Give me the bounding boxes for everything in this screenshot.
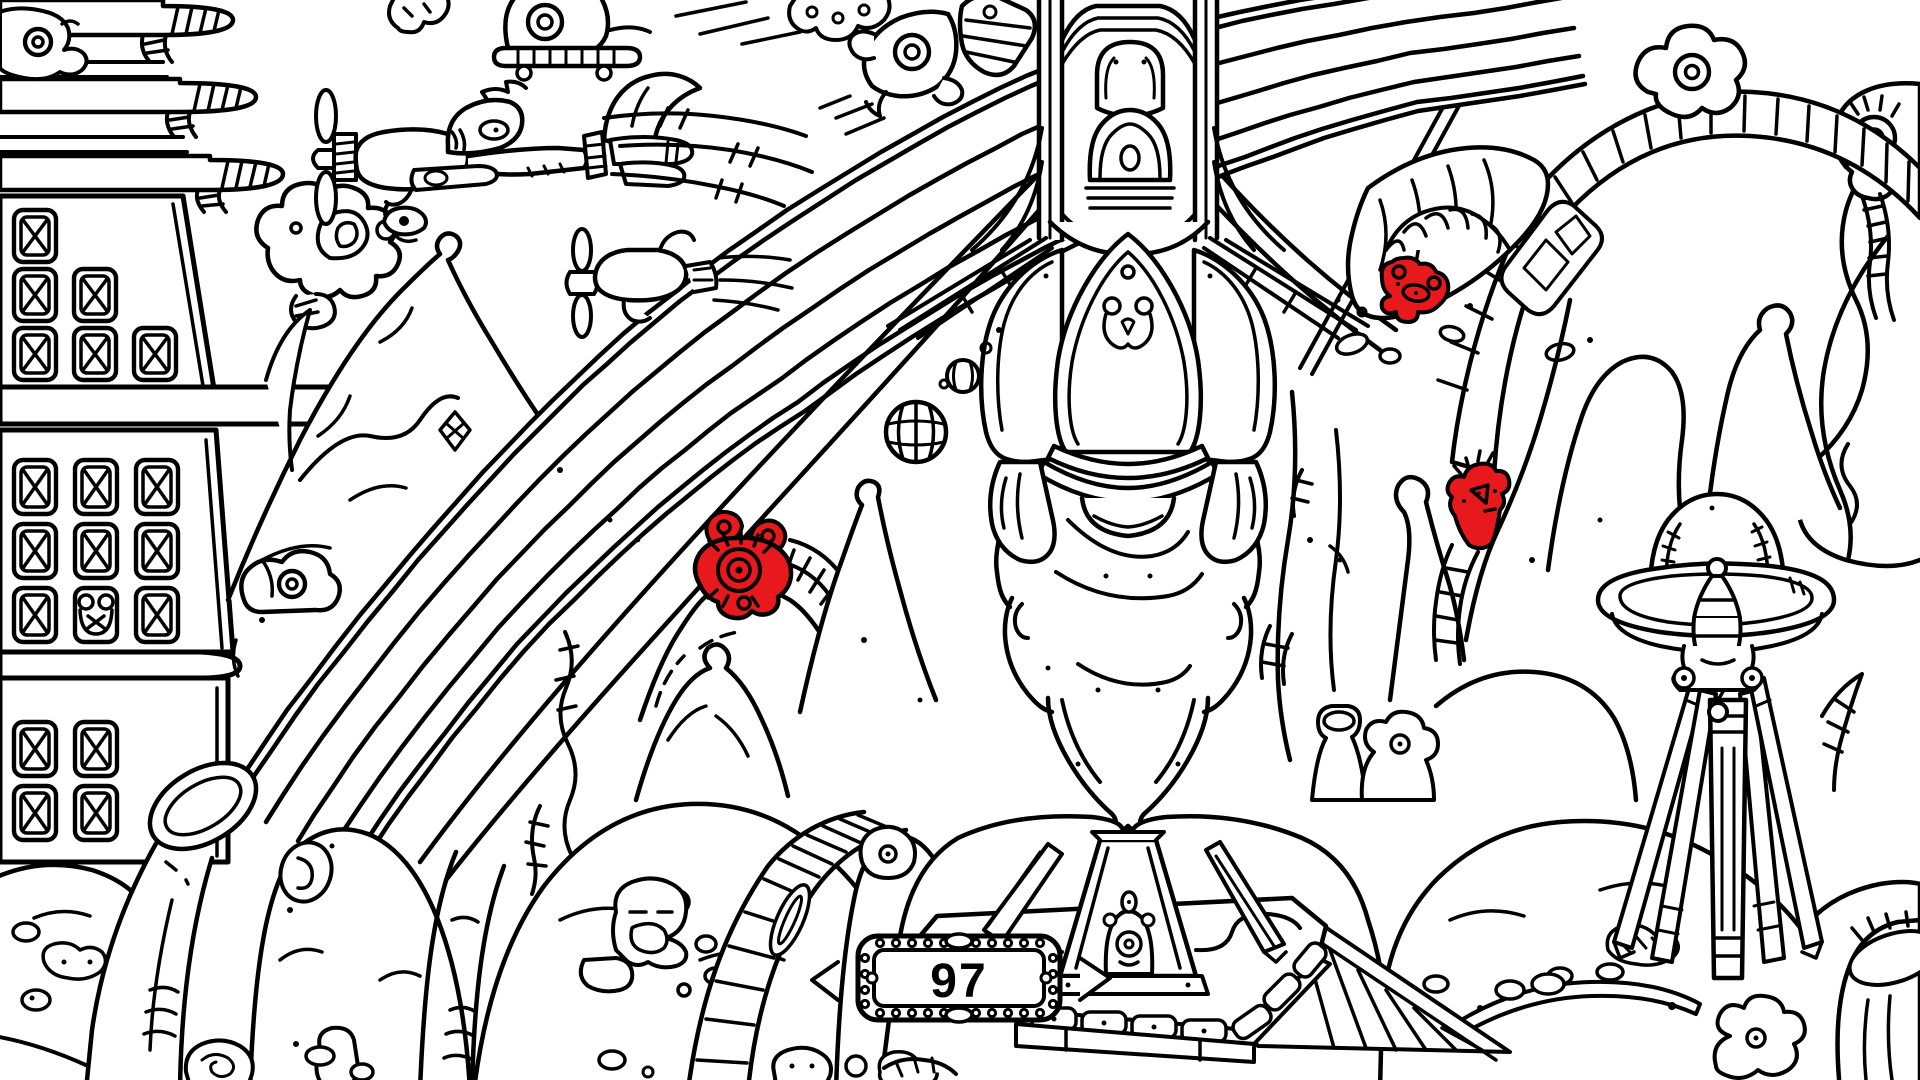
svg-text:97: 97 (930, 955, 987, 1008)
